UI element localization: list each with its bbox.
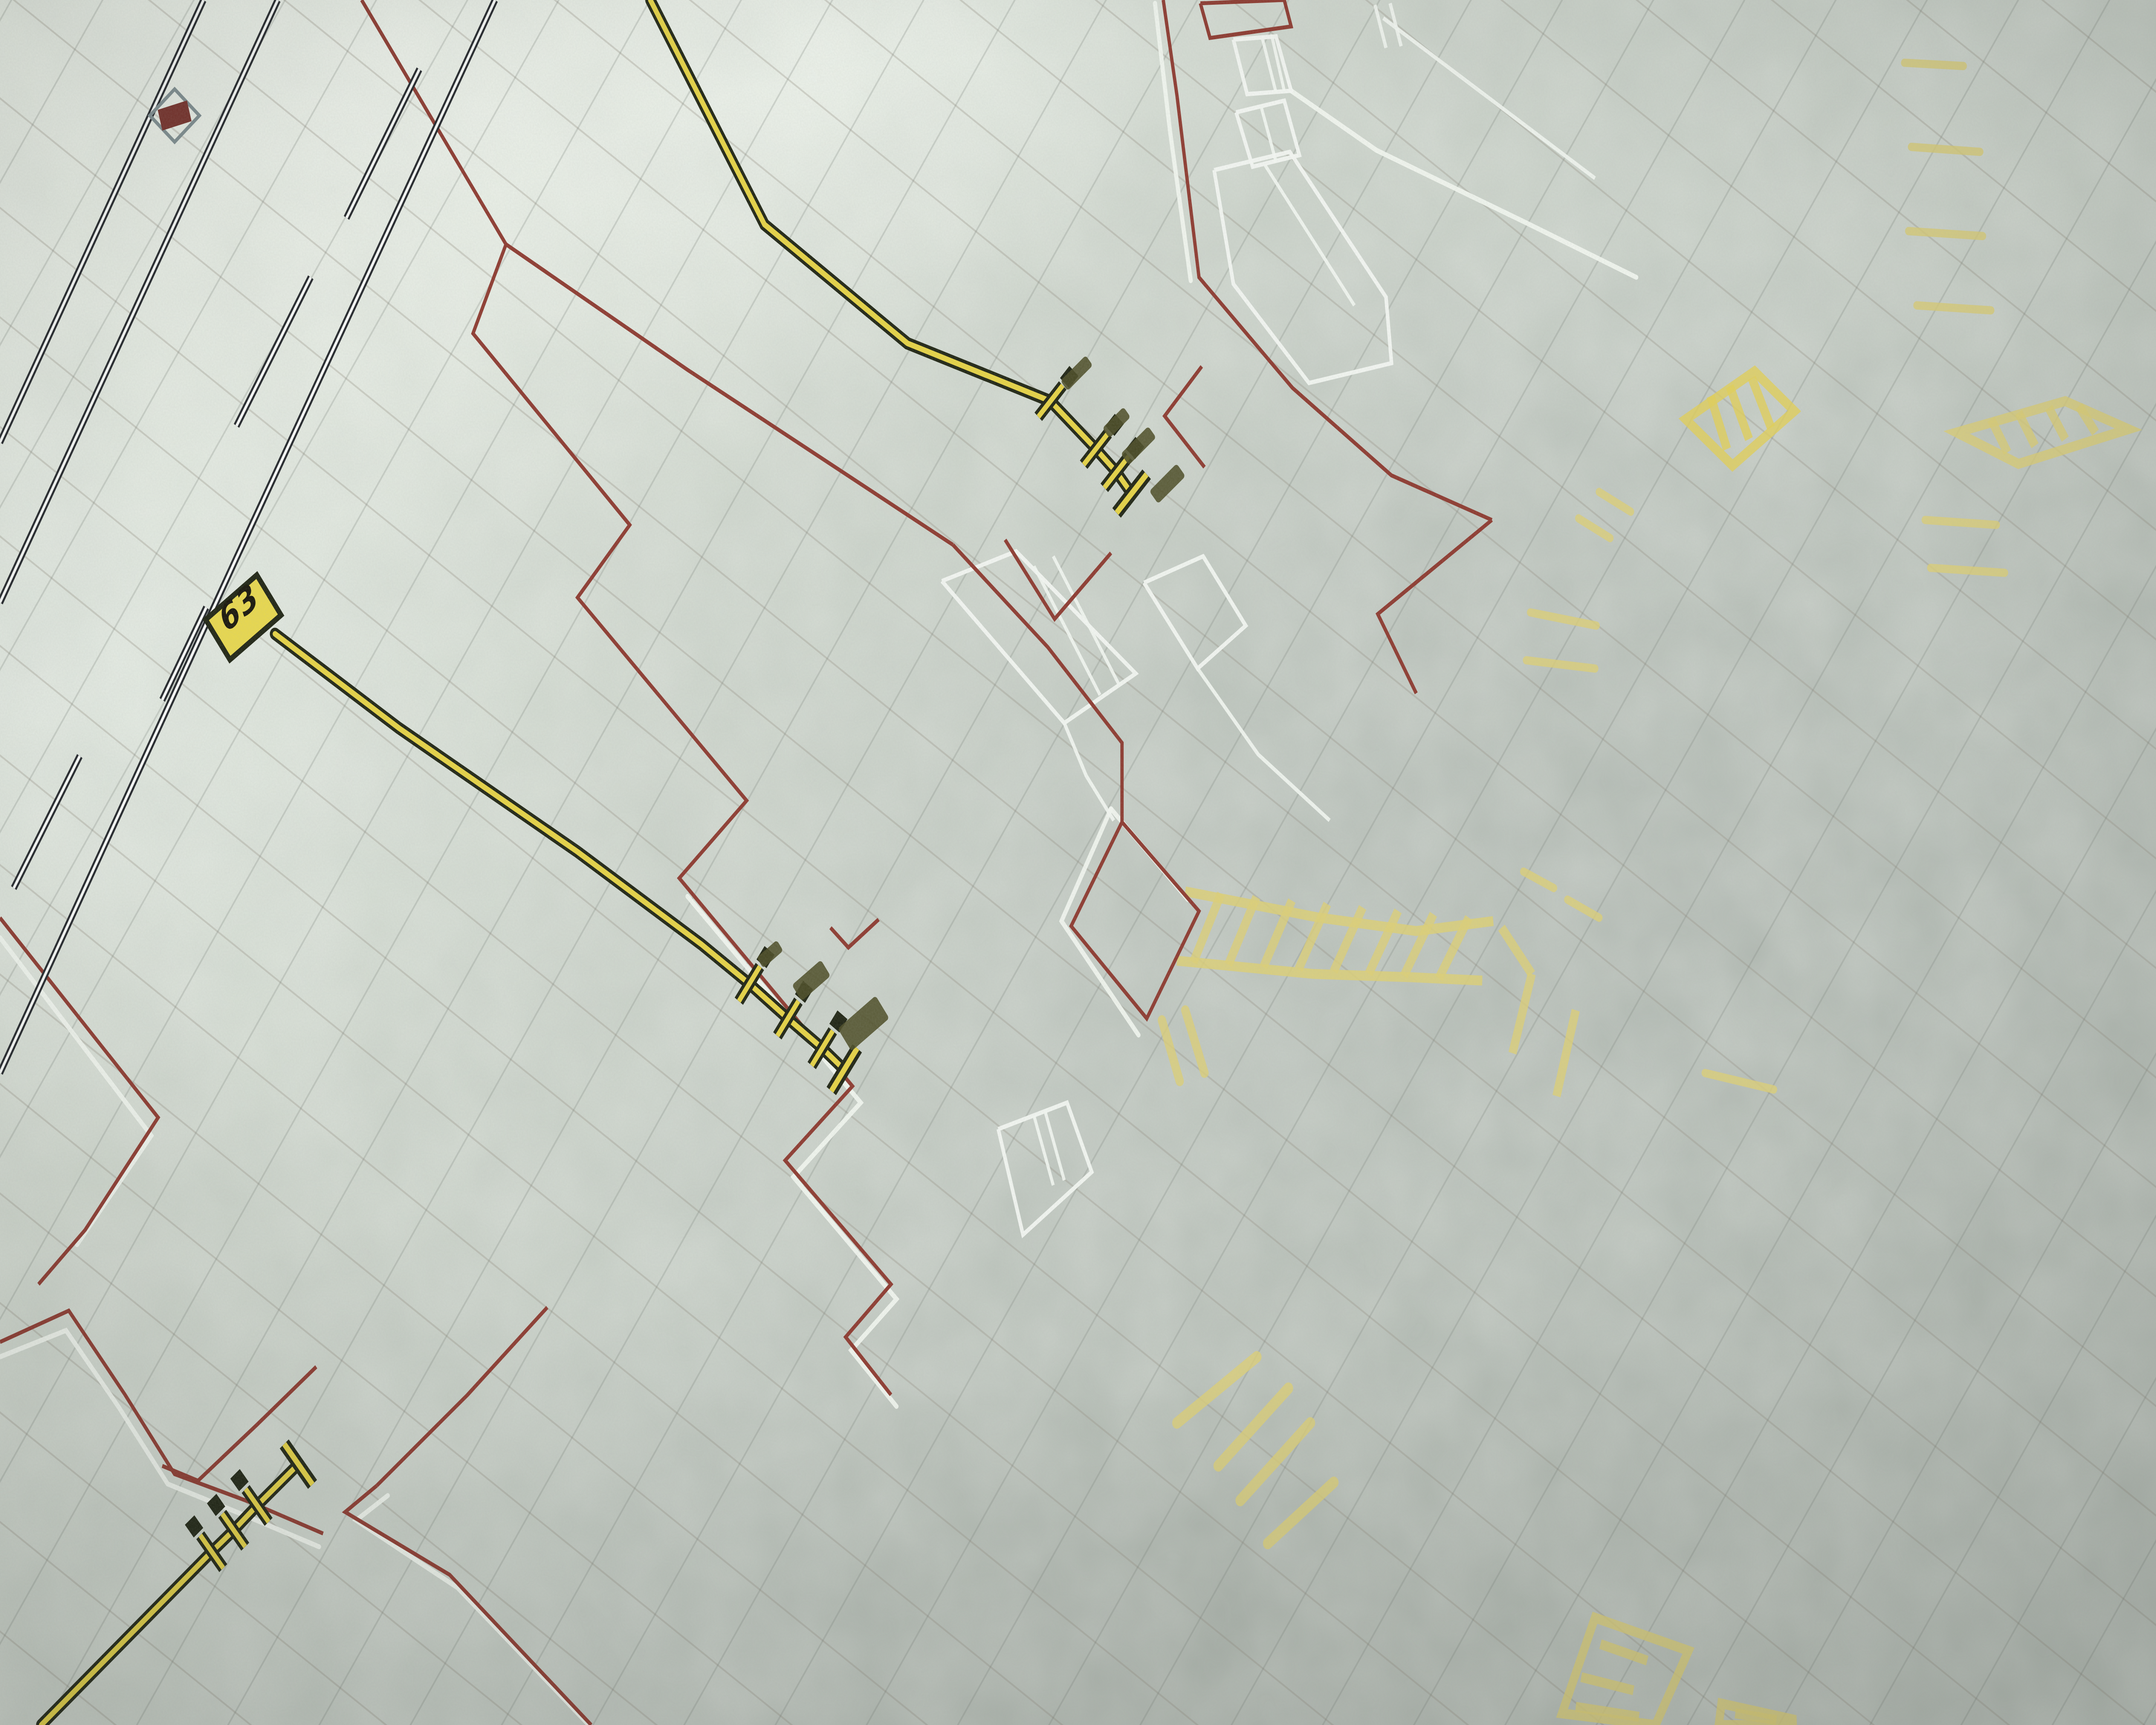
cadastral-map: 63: [0, 0, 2156, 1725]
map-photo: 63: [0, 0, 2156, 1725]
paper-grain: [0, 0, 2156, 1725]
